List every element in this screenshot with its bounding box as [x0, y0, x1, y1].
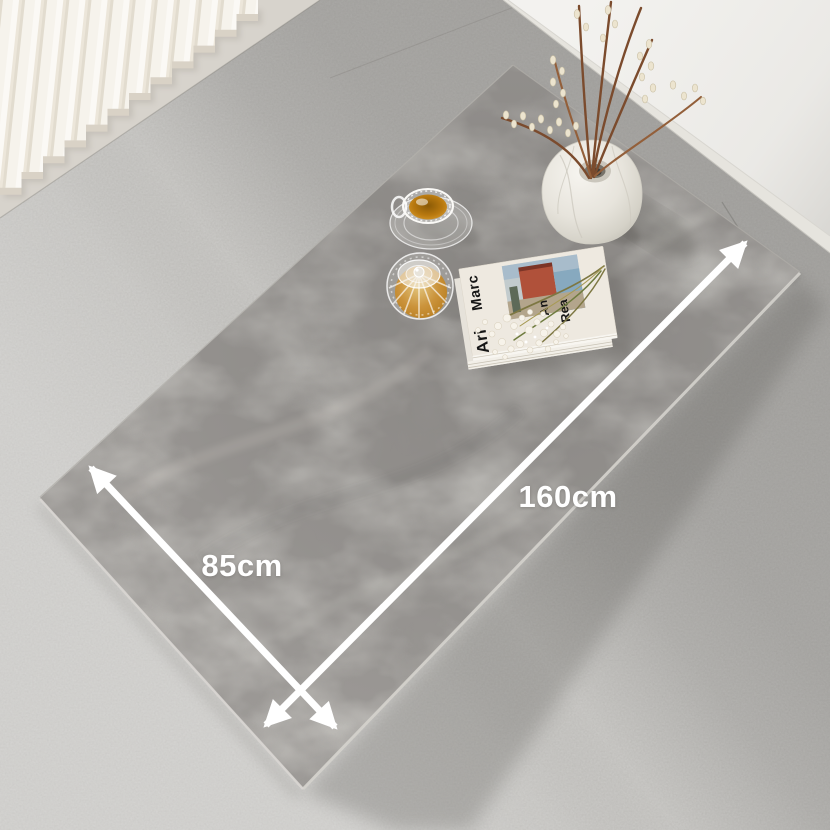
lid-knob: [414, 267, 424, 277]
product-photo-scene: Marc Ari An Rea: [0, 0, 830, 830]
scene-svg: Marc Ari An Rea: [0, 0, 830, 830]
tea: [409, 195, 447, 220]
